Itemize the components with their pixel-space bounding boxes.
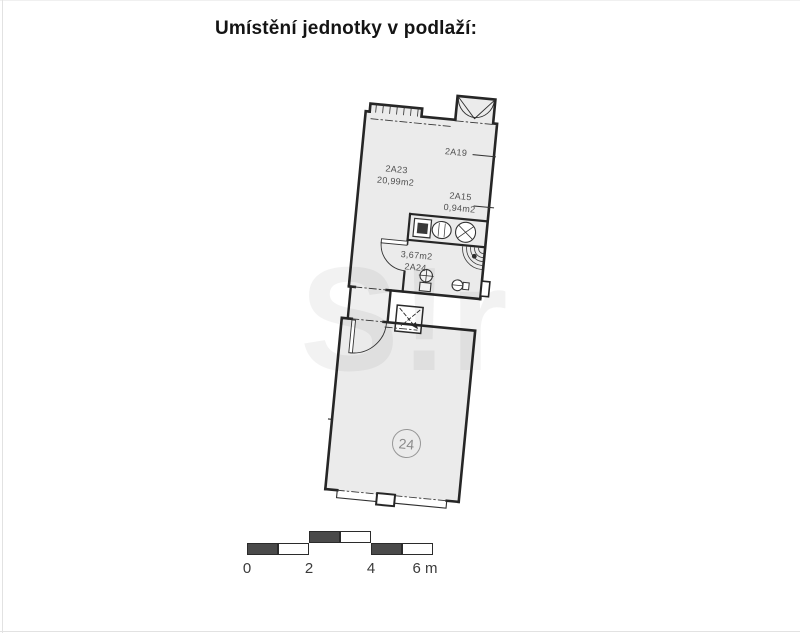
room-label-2a23: 2A23 20,99m2 bbox=[376, 163, 415, 190]
scale-segment-dark bbox=[371, 543, 402, 555]
room-id-2a24: 2A24 bbox=[404, 261, 427, 273]
room-area-2a23: 20,99m2 bbox=[377, 174, 415, 187]
room-id-2a15: 2A15 bbox=[449, 190, 472, 202]
scale-bar: 0 2 4 6 m bbox=[247, 531, 433, 577]
page-bottom-border bbox=[0, 631, 800, 632]
room-label-2a24: 3,67m2 2A24 bbox=[399, 249, 433, 275]
scale-segment-light bbox=[402, 543, 433, 555]
room-area-2a24: 3,67m2 bbox=[400, 249, 433, 262]
washing-machine-symbol bbox=[413, 218, 432, 238]
room-id-2a23: 2A23 bbox=[385, 163, 408, 175]
page-left-border bbox=[2, 0, 3, 633]
floor-plan-svg bbox=[292, 78, 522, 530]
scale-segment-dark bbox=[309, 531, 340, 543]
page: Umístění jednotky v podlaží: bbox=[0, 0, 800, 633]
room-area-2a15: 0,94m2 bbox=[443, 202, 476, 215]
scale-segment-dark bbox=[247, 543, 278, 555]
scale-tick-2: 2 bbox=[305, 560, 313, 577]
page-top-border bbox=[0, 0, 800, 1]
vestibule-floor bbox=[348, 287, 391, 323]
scale-segment-light bbox=[340, 531, 371, 543]
room-id-2a19: 2A19 bbox=[445, 146, 468, 158]
room-label-2a19: 2A19 bbox=[444, 146, 467, 160]
scale-tick-4: 4 bbox=[367, 560, 375, 577]
floor-plan bbox=[292, 78, 522, 530]
shaft-symbol bbox=[395, 305, 423, 333]
unit-number: 24 bbox=[398, 435, 415, 452]
scale-tick-6: 6 m bbox=[412, 560, 437, 577]
bottom-pier bbox=[376, 493, 395, 506]
lower-room-floor bbox=[325, 318, 475, 502]
room-label-2a15: 2A15 0,94m2 bbox=[443, 190, 477, 216]
scale-tick-0: 0 bbox=[243, 560, 251, 577]
page-title: Umístění jednotky v podlaží: bbox=[215, 18, 477, 40]
wall-niche bbox=[481, 281, 490, 297]
scale-segment-light bbox=[278, 543, 309, 555]
